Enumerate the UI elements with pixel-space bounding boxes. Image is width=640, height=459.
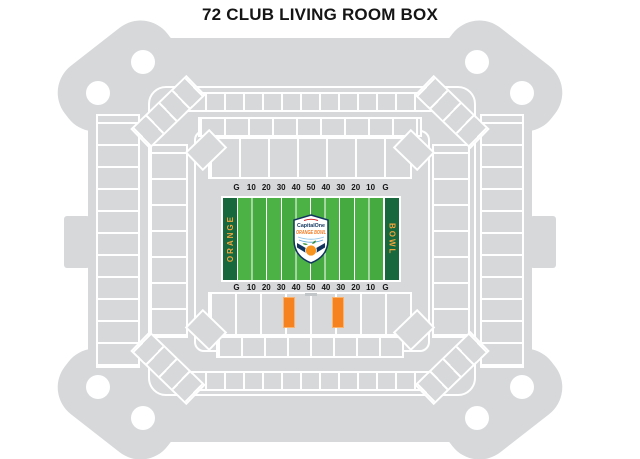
field-submarker [305, 293, 317, 296]
yard-label: G [229, 183, 244, 193]
yard-label: 20 [348, 283, 363, 293]
logo-event-text: ORANGE BOWL [296, 230, 326, 236]
field-stripes: CapitalOne ORANGE BOWL [237, 198, 385, 280]
upper-deck-west [98, 116, 138, 366]
yard-label: 50 [304, 283, 319, 293]
yard-label: G [378, 183, 393, 193]
lower-bowl-west [152, 146, 186, 336]
mezzanine-band-south [218, 338, 402, 356]
logo-brand-text: CapitalOne [297, 223, 325, 229]
orange-fruit-icon [306, 245, 317, 256]
upper-deck-east [482, 116, 522, 366]
72-club-box-right[interactable] [332, 297, 344, 328]
east-gate-structure [530, 216, 556, 268]
endzone-east: BOWL [385, 198, 399, 280]
ramp-circle-icon [450, 391, 504, 445]
page-title: 72 CLUB LIVING ROOM BOX [0, 5, 640, 25]
orange-bowl-logo: CapitalOne ORANGE BOWL [292, 214, 330, 264]
suite-band-south [186, 373, 434, 389]
ramp-circle-icon [495, 66, 549, 120]
yard-number-row-top: G 10 20 30 40 50 40 30 20 10 G [229, 183, 393, 193]
yard-label: 10 [363, 283, 378, 293]
yard-label: 40 [289, 183, 304, 193]
yard-number-row-bottom: G 10 20 30 40 50 40 30 20 10 G [229, 283, 393, 293]
yard-label: 20 [259, 283, 274, 293]
endzone-west: ORANGE [223, 198, 237, 280]
seating-map-page: 72 CLUB LIVING ROOM BOX [0, 0, 640, 459]
ramp-circle-icon [450, 35, 504, 89]
yard-label: 30 [333, 183, 348, 193]
suite-band-north [186, 94, 434, 110]
mezzanine-band-north [200, 119, 420, 135]
yard-label: 50 [304, 183, 319, 193]
72-club-box-left[interactable] [283, 297, 295, 328]
ramp-circle-icon [495, 360, 549, 414]
yard-label: 10 [363, 183, 378, 193]
yard-label: 30 [274, 283, 289, 293]
yard-label: 20 [348, 183, 363, 193]
yard-label: 40 [318, 283, 333, 293]
ramp-circle-icon [71, 66, 125, 120]
ramp-circle-icon [116, 391, 170, 445]
yard-label: 40 [289, 283, 304, 293]
ramp-circle-icon [116, 35, 170, 89]
lower-bowl-north [210, 139, 410, 177]
yard-label: G [378, 283, 393, 293]
yard-label: 10 [244, 283, 259, 293]
lower-bowl-east [434, 146, 468, 336]
football-field: ORANGE CapitalOne ORANGE BOWL BOWL [221, 196, 401, 282]
west-gate-structure [64, 216, 90, 268]
endzone-east-label: BOWL [388, 223, 397, 255]
lower-bowl-south [210, 294, 410, 334]
yard-label: 20 [259, 183, 274, 193]
yard-label: 30 [274, 183, 289, 193]
yard-label: 30 [333, 283, 348, 293]
yard-label: 40 [318, 183, 333, 193]
yard-label: 10 [244, 183, 259, 193]
endzone-west-label: ORANGE [226, 215, 235, 262]
ramp-circle-icon [71, 360, 125, 414]
yard-label: G [229, 283, 244, 293]
